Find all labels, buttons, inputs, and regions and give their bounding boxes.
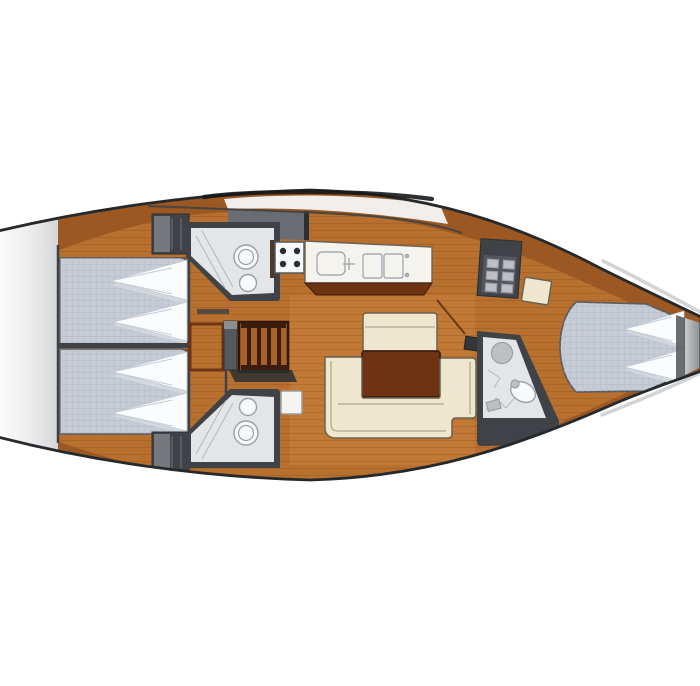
wardrobe-port xyxy=(152,214,189,254)
toilet xyxy=(234,421,258,445)
wardrobe-starboard xyxy=(152,432,189,472)
boat-floorplan xyxy=(0,0,700,686)
aft-cabin-port xyxy=(60,257,189,345)
cabin-bulkhead xyxy=(59,343,189,348)
counter-edge xyxy=(305,283,432,295)
floorplan-canvas xyxy=(0,0,700,686)
companionway-steps xyxy=(239,322,288,372)
bow-locker xyxy=(685,318,700,375)
aft-cabin-starboard xyxy=(60,349,189,434)
transom xyxy=(0,185,58,505)
galley-counter xyxy=(305,241,432,283)
berth-footboard xyxy=(676,315,685,380)
door-hinge xyxy=(464,336,479,351)
sink xyxy=(240,399,257,416)
fridge-locker xyxy=(477,239,522,299)
stove xyxy=(275,242,304,273)
sink xyxy=(492,343,513,364)
salon-backrest xyxy=(363,313,437,353)
bow-cabin-seat xyxy=(521,277,551,305)
stool-seat xyxy=(281,391,302,414)
sink xyxy=(240,275,257,292)
salon-table xyxy=(362,351,440,397)
toilet xyxy=(234,245,258,269)
